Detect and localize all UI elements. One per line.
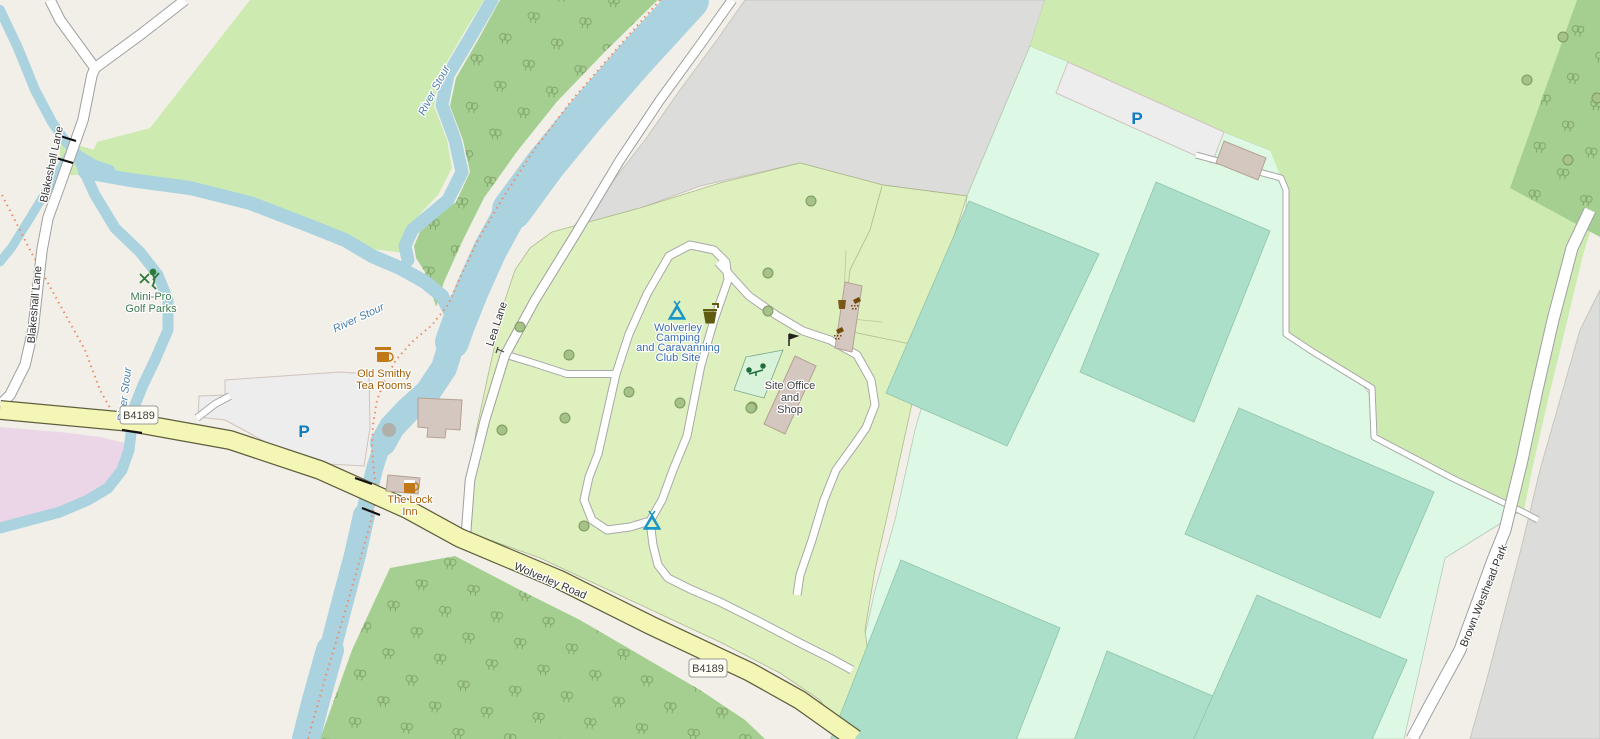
- svg-text:Mini-Pro: Mini-Pro: [131, 291, 172, 303]
- svg-text:Inn: Inn: [402, 506, 417, 518]
- svg-text:P: P: [298, 422, 309, 441]
- svg-text:B4189: B4189: [692, 663, 724, 675]
- svg-text:Tea Rooms: Tea Rooms: [356, 380, 412, 392]
- svg-text:Club Site: Club Site: [656, 352, 701, 364]
- svg-text:Site Office: Site Office: [765, 380, 816, 392]
- svg-text:Shop: Shop: [777, 404, 803, 416]
- svg-text:and: and: [781, 392, 799, 404]
- svg-text:The Lock: The Lock: [387, 494, 433, 506]
- svg-text:Golf Parks: Golf Parks: [125, 303, 177, 315]
- svg-text:Old Smithy: Old Smithy: [357, 368, 411, 380]
- svg-text:B4189: B4189: [123, 410, 155, 422]
- svg-text:P: P: [1131, 109, 1142, 128]
